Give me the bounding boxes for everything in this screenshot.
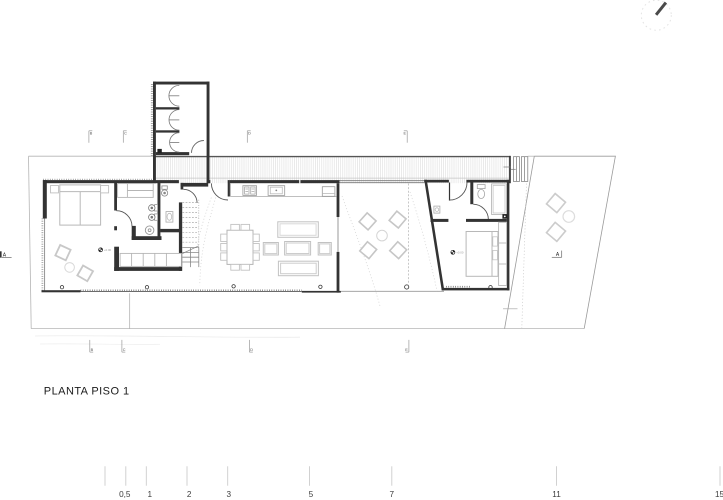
svg-text:D: D <box>248 132 251 136</box>
svg-text:7: 7 <box>390 490 395 499</box>
svg-text:C: C <box>123 348 126 352</box>
svg-text:3: 3 <box>227 490 232 499</box>
svg-text:C: C <box>124 132 127 136</box>
svg-text:15: 15 <box>715 490 723 499</box>
svg-text:11: 11 <box>552 490 561 499</box>
svg-text:2: 2 <box>187 490 192 499</box>
svg-text:0,5: 0,5 <box>119 490 131 499</box>
svg-text:+0.00: +0.00 <box>104 248 112 252</box>
svg-text:B: B <box>91 348 94 352</box>
svg-text:1: 1 <box>148 490 153 499</box>
svg-text:5: 5 <box>309 490 314 499</box>
svg-text:D: D <box>250 348 253 352</box>
svg-text:+0.00: +0.00 <box>456 251 464 255</box>
svg-text:PLANTA PISO 1: PLANTA PISO 1 <box>44 386 130 398</box>
